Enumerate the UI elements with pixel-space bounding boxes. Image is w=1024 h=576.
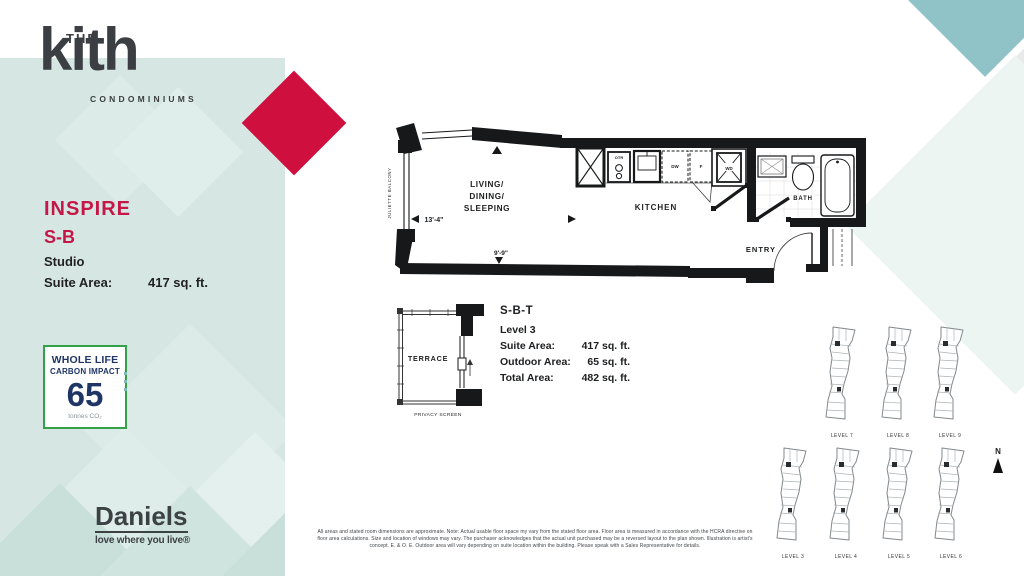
building-footprint <box>930 324 970 424</box>
level-label: LEVEL 5 <box>872 554 926 560</box>
wd-label: WD <box>725 166 732 171</box>
building-footprint <box>931 445 971 545</box>
terrace-window <box>458 336 466 388</box>
keyplan-level-9: LEVEL 9 <box>923 324 977 439</box>
row-value: 65 sq. ft. <box>587 356 630 368</box>
depth-dimension: 9'-9" <box>494 250 508 257</box>
walls <box>395 123 866 283</box>
row-label: Outdoor Area: <box>500 356 571 368</box>
row-value: 482 sq. ft. <box>582 372 630 384</box>
fridge <box>690 151 712 202</box>
keyplan-level-4: LEVEL 4 <box>819 445 873 560</box>
keyplan-level-7: LEVEL 7 <box>815 324 869 439</box>
keyplan-level-8: LEVEL 8 <box>871 324 925 439</box>
carbon-unit: tonnes CO₂ <box>68 413 102 420</box>
terrace-label: TERRACE <box>408 354 448 363</box>
bath-label: BATH <box>793 196 812 202</box>
suite-summary: S-B-T Level 3 Suite Area: 417 sq. ft. Ou… <box>500 305 630 384</box>
privacy-screen-label: PRIVACY SCREEN <box>414 412 462 418</box>
floorplan-sheet: THE kith CONDOMINIUMS INSPIRE S-B Studio… <box>0 0 1024 576</box>
floorplan-drawing: LIVING/ DINING/ SLEEPING KITCHEN BATH EN… <box>380 110 880 310</box>
level-label: LEVEL 4 <box>819 554 873 560</box>
dw-label: DW <box>671 164 679 169</box>
north-arrow-icon <box>993 458 1003 473</box>
condominiums-label: CONDOMINIUMS <box>90 94 197 104</box>
building-footprint <box>878 324 918 424</box>
building-footprint <box>826 445 866 545</box>
carbon-line2: CARBON IMPACT <box>50 367 120 376</box>
railing-post <box>397 308 403 314</box>
bath-vanity <box>758 156 786 177</box>
north-label: N <box>988 447 1008 456</box>
north-indicator: N <box>988 447 1008 473</box>
building-footprint <box>773 445 813 545</box>
terrace-detail-drawing: TERRACE PRIVACY SCREEN <box>390 298 510 428</box>
row-label: Total Area: <box>500 372 554 384</box>
keyplan-level-5: LEVEL 5 <box>872 445 926 560</box>
suite-model: S-B <box>44 227 75 248</box>
terrace-arrow <box>467 359 473 376</box>
suite-type: Studio <box>44 254 84 269</box>
level-label: LEVEL 9 <box>923 433 977 439</box>
shaft <box>577 148 604 186</box>
kitchen-label: KITCHEN <box>635 203 678 212</box>
carbon-line1: WHOLE LIFE <box>52 354 119 366</box>
bathtub <box>821 155 854 216</box>
suite-area-label: Suite Area: <box>44 275 112 290</box>
total-area-row: Total Area: 482 sq. ft. <box>500 372 630 384</box>
keyplan-level-6: LEVEL 6 <box>924 445 978 560</box>
keyplan-level-3: LEVEL 3 <box>766 445 820 560</box>
juliette-balcony-label: JULIETTE BALCONY <box>387 167 392 218</box>
otr-label: OTR <box>615 155 624 160</box>
fridge-label: F <box>700 164 703 169</box>
suite-summary-title: S-B-T <box>500 305 630 317</box>
carbon-value: 65 <box>67 378 104 411</box>
toilet <box>792 156 814 190</box>
level-label: LEVEL 3 <box>766 554 820 560</box>
living-label-3: SLEEPING <box>464 204 510 213</box>
width-dimension: 13'-4" <box>425 217 444 224</box>
kitchen-sink <box>634 151 660 182</box>
level-label: LEVEL 6 <box>924 554 978 560</box>
entry-label: ENTRY <box>746 245 776 254</box>
level-label: LEVEL 7 <box>815 433 869 439</box>
row-label: Suite Area: <box>500 340 555 352</box>
suite-summary-level: Level 3 <box>500 324 630 336</box>
entry-closet-lines <box>833 229 852 266</box>
living-label-2: DINING/ <box>469 192 504 201</box>
left-brand-panel <box>0 58 285 576</box>
living-label-1: LIVING/ <box>470 180 504 189</box>
carbon-badge-dots <box>124 372 127 391</box>
building-footprint <box>879 445 919 545</box>
collection-name: INSPIRE <box>44 198 131 221</box>
row-value: 417 sq. ft. <box>582 340 630 352</box>
kith-wordmark: kith <box>39 17 138 83</box>
railing-post <box>397 399 403 405</box>
disclaimer-text: All areas and stated room dimensions are… <box>315 529 755 550</box>
level-label: LEVEL 8 <box>871 433 925 439</box>
building-footprint <box>822 324 862 424</box>
developer-logo: Daniels love where you live® <box>95 503 190 546</box>
suite-area-value: 417 sq. ft. <box>148 275 208 290</box>
outdoor-area-row: Outdoor Area: 65 sq. ft. <box>500 356 630 368</box>
developer-name: Daniels <box>95 503 188 533</box>
carbon-impact-badge: WHOLE LIFE CARBON IMPACT 65 tonnes CO₂ <box>43 345 127 429</box>
developer-tagline: love where you live® <box>95 535 190 546</box>
suite-area-row: Suite Area: 417 sq. ft. <box>500 340 630 352</box>
